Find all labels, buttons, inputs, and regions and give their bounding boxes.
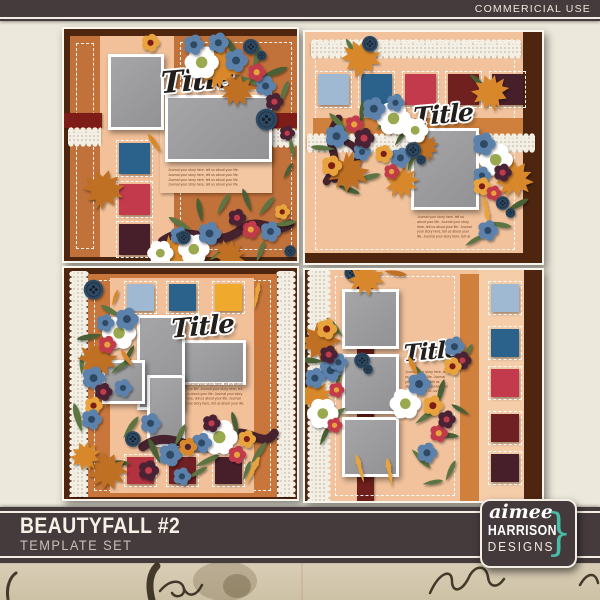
paper-band (460, 274, 479, 501)
brace-icon: } (546, 503, 571, 561)
journaling-block: Journal your story here, tell us about y… (186, 382, 246, 408)
color-swatch (491, 414, 519, 442)
color-swatch (361, 74, 392, 105)
product-subtitle: TEMPLATE SET (20, 538, 132, 553)
lace-trim (68, 130, 101, 144)
journaling-block: Journal your story here, tell us about y… (417, 215, 473, 239)
color-swatch (492, 74, 523, 105)
photo-placeholder (102, 360, 145, 404)
color-swatch (119, 224, 150, 255)
color-swatch (215, 284, 242, 311)
ribbon (64, 113, 102, 128)
product-title: BEAUTYFALL #2 (20, 513, 180, 539)
photo-placeholder (177, 340, 246, 385)
photo-placeholder (342, 289, 399, 349)
photo-placeholder (342, 417, 399, 477)
border-strip-right (524, 270, 542, 501)
lace-trim (310, 270, 328, 503)
template-preview-bottom-left: Title Journal your story here, tell us a… (62, 266, 299, 501)
color-swatch (491, 284, 519, 312)
lace-trim (72, 271, 86, 497)
color-swatch (491, 369, 519, 397)
border-strip-bottom (305, 253, 542, 263)
commercial-use-label: COMMERICIAL USE (475, 3, 591, 15)
journaling-text: Journal your story here, tell us about y… (405, 370, 449, 392)
photo-placeholder (165, 95, 272, 162)
color-swatch (169, 284, 196, 311)
color-swatch (127, 284, 154, 311)
color-swatch (491, 329, 519, 357)
border-strip-top (64, 29, 297, 36)
color-swatch (127, 457, 154, 484)
template-preview-bottom-right: Title Journal your story here, tell us a… (303, 268, 544, 503)
journaling-text: Journal your story here, tell us about y… (186, 382, 246, 406)
handwriting-background (0, 563, 600, 600)
color-swatch (169, 457, 196, 484)
handwriting-squiggles (0, 563, 600, 600)
brand-logo: aimee HARRISON DESIGNS } (480, 499, 577, 568)
top-banner: COMMERICIAL USE (0, 0, 600, 21)
brand-name-caps: HARRISON (488, 523, 554, 539)
color-swatch (318, 74, 349, 105)
template-preview-top-left: Title Journal your story here, tell us a… (62, 27, 299, 263)
color-swatch (119, 184, 150, 215)
photo-placeholder (411, 128, 479, 210)
journaling-text: Journal your story here, tell us about y… (417, 215, 473, 239)
color-swatch (491, 454, 519, 482)
color-swatch (119, 143, 150, 174)
photo-placeholder (147, 375, 185, 447)
lace-trim (311, 42, 521, 56)
border-strip-bottom (64, 257, 297, 261)
color-swatch (215, 457, 242, 484)
journaling-block: Journal your story here, tell us about y… (168, 168, 242, 191)
journaling-block: Journal your story here, tell us about y… (405, 370, 449, 392)
template-preview-top-right: Title Journal your story here, tell us a… (303, 30, 544, 265)
banner-divider-line (0, 17, 600, 19)
lace-trim (279, 271, 293, 497)
journaling-text: Journal your story here, tell us about y… (168, 168, 242, 188)
